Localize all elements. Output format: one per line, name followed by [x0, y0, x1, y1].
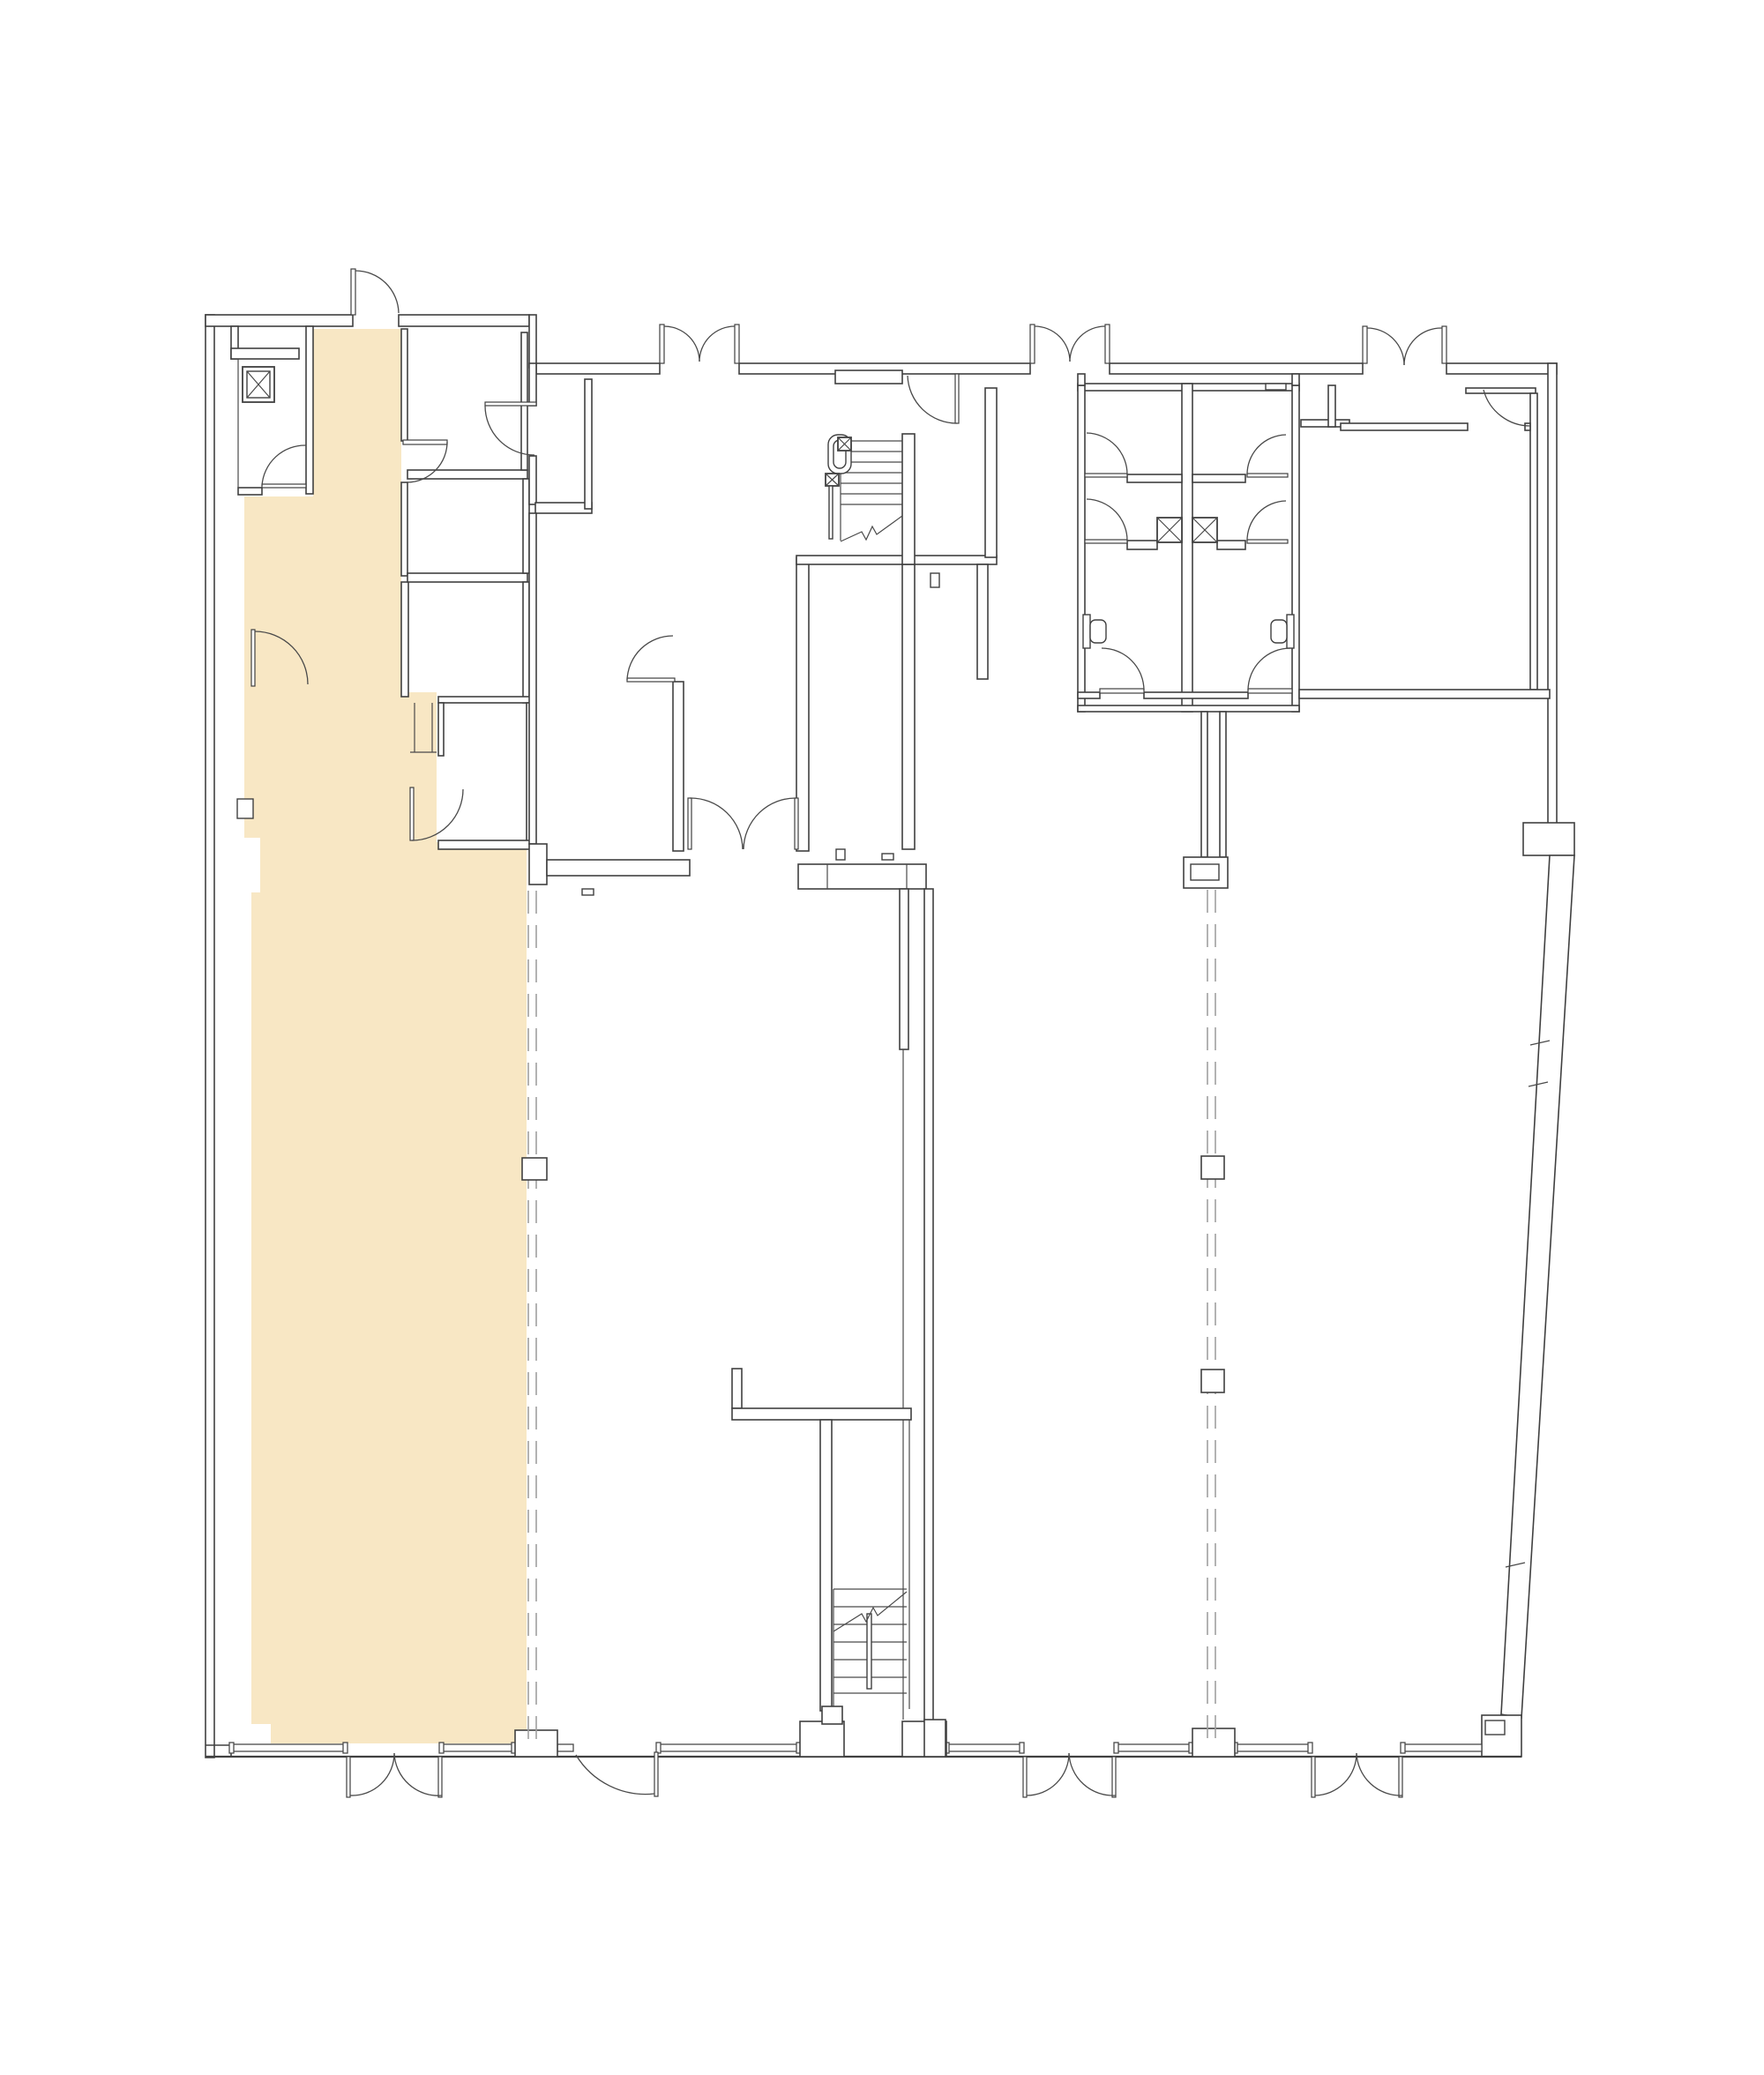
wall — [547, 860, 690, 876]
stem-wall — [1220, 712, 1226, 857]
core-wall — [1078, 692, 1100, 698]
glazing-segment — [1401, 1743, 1482, 1753]
lobby-wall — [231, 348, 299, 359]
core-wall — [1127, 541, 1157, 549]
stem-wall — [1201, 712, 1207, 857]
core-wall — [1182, 384, 1192, 712]
floor-plan-svg — [0, 0, 1764, 2075]
wall-fixture — [1266, 384, 1286, 390]
core-wall — [1144, 692, 1248, 698]
left-exterior-wall — [206, 315, 214, 1758]
partition — [407, 573, 527, 582]
core-wall — [1127, 474, 1182, 482]
wall-notch — [237, 799, 253, 818]
elevator-shaft-icon — [243, 367, 274, 402]
top-wall-recess-panel — [835, 370, 902, 384]
glazing-segment — [1114, 1743, 1193, 1753]
partition — [523, 582, 529, 703]
wall — [796, 556, 997, 564]
wall — [1328, 385, 1335, 427]
top-right-inner-lining-v — [1530, 393, 1537, 690]
duct-shaft-icon — [838, 437, 851, 451]
wall — [529, 513, 536, 844]
duct-shaft-icon — [826, 474, 839, 486]
fixture — [882, 854, 893, 860]
structural-column — [1201, 1156, 1224, 1179]
wall — [585, 379, 592, 509]
core-wall — [1292, 385, 1299, 712]
partition — [438, 703, 444, 756]
core-wall — [1078, 385, 1085, 712]
core-wall — [1217, 541, 1245, 549]
floor-plan-page — [0, 0, 1764, 2075]
partition — [438, 697, 532, 703]
stair-base-block — [800, 1721, 844, 1757]
wall — [529, 844, 547, 884]
glazing-segment — [945, 1743, 1024, 1753]
right-exterior-wall-upper — [1548, 363, 1557, 825]
duct-shaft-icon — [1192, 518, 1217, 542]
wall — [1525, 423, 1530, 430]
glazing-segment — [439, 1743, 516, 1753]
stair-wall — [820, 1420, 832, 1711]
wall — [1299, 690, 1550, 698]
stair-wall — [732, 1408, 911, 1420]
stair-railing — [867, 1614, 871, 1689]
structural-column — [1201, 1370, 1224, 1392]
glazing-segment — [1233, 1743, 1312, 1753]
wall — [902, 564, 915, 849]
wall — [673, 682, 684, 851]
tenant-wall — [900, 889, 908, 1049]
corner-block-inner — [1485, 1720, 1505, 1735]
core-stub — [1078, 374, 1085, 385]
partition — [401, 482, 407, 576]
storefront-pier — [1192, 1728, 1235, 1757]
stair-wall — [902, 434, 915, 564]
stair-railing — [829, 486, 833, 539]
partition — [401, 329, 407, 441]
glazing-segment — [229, 1743, 348, 1753]
right-wall-jog — [1523, 823, 1574, 855]
fixture — [582, 889, 594, 895]
fixture — [931, 573, 939, 587]
top-wall-e — [1446, 363, 1557, 374]
top-wall-step — [529, 315, 536, 368]
wall — [977, 564, 988, 679]
wall — [1341, 423, 1468, 430]
glazing-segment — [557, 1744, 573, 1751]
core-wall — [1078, 705, 1299, 712]
stair-stub — [732, 1369, 742, 1408]
partition — [438, 840, 532, 849]
wall — [985, 388, 997, 557]
partition — [521, 332, 527, 470]
stair-step-block — [822, 1706, 842, 1724]
toilet-icon — [1083, 615, 1106, 648]
wall — [529, 456, 536, 504]
core-wall — [1192, 474, 1245, 482]
top-wall-c1 — [536, 363, 660, 374]
toilet-icon — [1271, 615, 1294, 648]
top-wall-d — [1110, 363, 1363, 374]
tenant-wall — [924, 889, 933, 1721]
duct-shaft-icon — [1157, 518, 1182, 542]
partition — [401, 582, 408, 697]
structural-column — [522, 1158, 547, 1180]
top-right-inner-lining-h — [1466, 388, 1536, 393]
wall — [535, 503, 592, 513]
tenant-wall-end — [924, 1720, 946, 1757]
fixture — [836, 849, 845, 860]
top-wall-a — [206, 315, 353, 326]
partition — [523, 479, 529, 573]
wall — [529, 363, 536, 406]
top-wall-b — [399, 315, 529, 326]
stem-pier-inner — [1191, 864, 1219, 880]
core-stub — [1292, 374, 1299, 385]
glazing-segment — [656, 1743, 801, 1753]
elevator-room-right-wall — [306, 326, 313, 494]
elevator-room-bottom-wall — [238, 488, 262, 495]
